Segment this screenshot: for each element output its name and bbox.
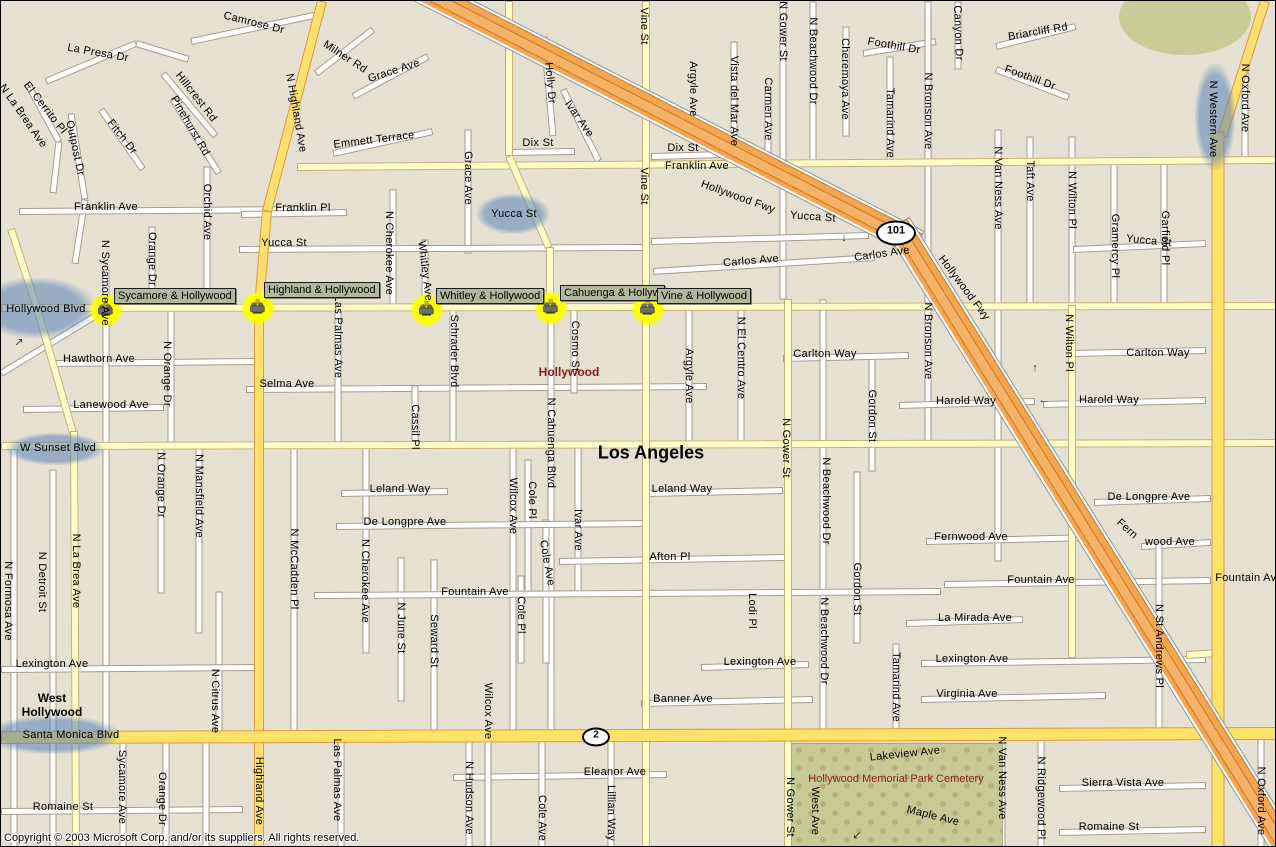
road-segment — [651, 232, 869, 245]
street-label: N Wilton Pl — [1063, 314, 1075, 372]
street-label: Sycamore Ave — [116, 750, 128, 824]
street-label: N Oxford Ave — [1255, 767, 1267, 836]
oneway-arrow-icon: ↙ — [852, 829, 861, 842]
street-label: N Detroit St — [36, 552, 48, 612]
street-label: N Ridgewood Pl — [1035, 756, 1047, 839]
route-shield-101: 101 — [876, 221, 916, 246]
oneway-arrow-icon: ↑ — [1032, 362, 1038, 374]
street-label: N Orange Dr — [155, 452, 167, 518]
street-label: N Wilton Pl — [1066, 171, 1078, 229]
street-label: Lexington Ave — [724, 656, 797, 668]
street-label: Lillian Way — [605, 785, 617, 841]
street-label: Eleanor Ave — [584, 766, 646, 778]
intersection-callout[interactable]: Whitley & Hollywood — [436, 288, 544, 304]
street-label: Hollywood Blvd — [6, 303, 85, 315]
road-segment — [1, 727, 1276, 744]
street-label: Carmen Ave — [762, 77, 774, 140]
street-label: Fountain Ave — [441, 586, 509, 598]
street-label: Tamarind Ave — [890, 652, 902, 722]
street-label: Argyle Ave — [687, 61, 699, 116]
street-label: N Western Ave — [1207, 81, 1219, 158]
street-label: Franklin Ave — [665, 160, 729, 172]
street-label: Lexington Ave — [936, 653, 1009, 665]
road-segment — [246, 383, 707, 393]
road-segment — [11, 446, 18, 847]
street-label: N El Centro Ave — [735, 317, 747, 400]
park-area — [1119, 0, 1251, 55]
camera-icon — [249, 299, 266, 314]
oneway-arrow-icon: ↓ — [841, 232, 847, 244]
street-map[interactable]: Copyright © 2003 Microsoft Corp. and/or … — [0, 0, 1276, 847]
street-label: Cole Pl — [515, 596, 527, 634]
street-label: Virginia Ave — [936, 688, 997, 700]
street-label: Carlos Ave — [853, 244, 910, 264]
copyright-text: Copyright © 2003 Microsoft Corp. and/or … — [4, 832, 359, 844]
street-label: N Beachwood Dr — [807, 17, 819, 104]
street-label: Afton Pl — [650, 551, 691, 563]
street-label: N Bronson Ave — [922, 302, 934, 379]
road-segment — [944, 577, 1211, 588]
street-label: N Gower St — [780, 418, 792, 478]
street-label: La Mirada Ave — [938, 612, 1012, 624]
camera-icon — [418, 301, 435, 316]
street-label: Grace Ave — [462, 151, 474, 205]
street-label: Cole Pl — [526, 481, 538, 519]
street-label: Banner Ave — [653, 693, 713, 705]
street-label: Las Palmas Ave — [331, 739, 343, 822]
street-label: Yucca St — [790, 209, 837, 224]
oneway-arrow-icon: ↗ — [14, 336, 23, 349]
street-label: N Beachwood Dr — [820, 457, 832, 544]
street-label: Outpost Dr — [63, 119, 86, 176]
street-label: N Sycamore Ave — [99, 240, 111, 326]
street-label: Schrader Blvd — [448, 315, 460, 388]
street-label: De Longpre Ave — [364, 516, 447, 528]
street-label: Vine St — [638, 167, 650, 204]
street-label: Taft Ave — [1024, 160, 1036, 201]
road-segment — [7, 228, 41, 309]
place-label: Hollywood — [539, 365, 600, 379]
street-label: N McCadden Pl — [288, 529, 300, 610]
road-segment — [50, 141, 63, 194]
intersection-callout[interactable]: Cahuenga & Hollyw — [560, 285, 665, 301]
street-label: Lanewood Ave — [73, 399, 149, 411]
street-label: Carlton Way — [793, 348, 856, 360]
camera-icon — [639, 300, 656, 315]
street-label: wood Ave — [1145, 536, 1195, 548]
intersection-callout[interactable]: Highland & Hollywood — [264, 282, 380, 298]
street-label: Canyon Dr — [951, 5, 965, 61]
street-label: N Formosa Ave — [2, 561, 14, 641]
street-label: Grace Ave — [367, 57, 422, 85]
street-label: N Van Ness Ave — [992, 146, 1004, 229]
street-label: Gramercy Pl — [1109, 214, 1121, 278]
street-label: Carlton Way — [1126, 347, 1189, 359]
street-label: N June St — [395, 602, 407, 653]
place-label: WestHollywood — [22, 691, 83, 719]
street-label: Harold Way — [936, 395, 996, 407]
street-label: Hawthorn Ave — [63, 353, 135, 365]
street-label: De Longpre Ave — [1108, 491, 1191, 503]
street-label: N Cahuenga Blvd — [545, 398, 557, 489]
street-label: Fitch Dr — [105, 117, 140, 157]
place-label: Los Angeles — [598, 443, 704, 464]
street-label: Harold Way — [1079, 394, 1139, 406]
road-segment — [642, 1, 650, 847]
street-label: Orchid Ave — [201, 184, 213, 241]
road-segment — [70, 431, 80, 847]
street-label: N Van Ness Ave — [996, 736, 1008, 819]
road-segment — [854, 471, 861, 643]
street-label: Orange Dr — [146, 232, 158, 286]
street-label: Ivar Ave — [572, 509, 584, 551]
street-label: Wilcox Ave — [482, 683, 494, 740]
road-segment — [485, 737, 492, 847]
street-label: Romaine St — [33, 801, 93, 813]
place-label: Hollywood Memorial Park Cemetery — [808, 773, 983, 785]
street-label: Gordon St — [866, 390, 878, 443]
street-label: N Cherokee Ave — [359, 539, 371, 623]
street-label: N Orange Dr — [161, 341, 173, 407]
street-label: West Ave — [809, 787, 821, 835]
street-label: Ivar Ave — [562, 98, 596, 139]
street-label: N St Andrews Pl — [1153, 604, 1165, 688]
street-label: Wilcox Ave — [507, 478, 519, 535]
street-label: Cassil Pl — [409, 404, 421, 450]
street-label: Dix St — [522, 137, 553, 149]
oneway-arrow-icon: ← — [1039, 394, 1050, 406]
street-label: N Oxford Ave — [1239, 64, 1251, 133]
street-label: N Gower St — [777, 1, 789, 61]
street-label: Gordon St — [851, 563, 863, 616]
street-label: Hollywood Fwy — [699, 178, 776, 216]
street-label: Garfield Pl — [1159, 211, 1171, 266]
route-shield-2: 2 — [582, 728, 610, 747]
road-segment — [314, 588, 941, 599]
street-label: Highland Ave — [253, 757, 265, 825]
street-label: Tamarind Ave — [884, 88, 896, 158]
street-label: Cheremoya Ave — [839, 38, 851, 120]
street-label: Franklin Pl — [275, 202, 330, 214]
street-label: Cosmo St — [569, 321, 581, 372]
street-label: Leland Way — [652, 483, 713, 495]
street-label: N Beachwood Dr — [818, 597, 830, 684]
street-label: Sierra Vista Ave — [1082, 777, 1165, 789]
street-label: Fountain Ave — [1007, 574, 1075, 586]
street-label: N Cherokee Ave — [383, 211, 395, 295]
street-label: N Mansfield Ave — [193, 454, 205, 538]
street-label: N Citrus Ave — [209, 669, 221, 734]
intersection-callout[interactable]: Vine & Hollywood — [657, 288, 751, 304]
street-label: N La Brea Ave — [70, 534, 82, 609]
street-label: N Hudson Ave — [463, 761, 475, 835]
street-label: N Gower St — [784, 777, 796, 837]
street-label: Fernwood Ave — [934, 531, 1008, 543]
street-label: W Sunset Blvd — [20, 442, 96, 454]
street-label: Santa Monica Blvd — [23, 729, 120, 741]
street-label: Yucca St — [491, 208, 537, 220]
street-label: Vine St — [638, 7, 650, 44]
road-segment — [203, 737, 210, 847]
street-label: Briarcliff Rd — [1007, 21, 1069, 43]
street-label: Lodi Pl — [746, 593, 758, 629]
intersection-callout[interactable]: Sycamore & Hollywood — [114, 288, 236, 304]
camera-icon — [542, 299, 559, 314]
street-label: Franklin Ave — [74, 201, 138, 213]
street-label: Argyle Ave — [683, 348, 695, 403]
street-label: Vista del Mar Ave — [728, 56, 740, 146]
street-label: Cole Ave — [536, 795, 548, 841]
street-label: Romaine St — [1079, 821, 1139, 833]
street-label: Lexington Ave — [16, 658, 89, 670]
street-label: Seward St — [428, 614, 440, 667]
street-label: Milner Rd — [321, 38, 369, 75]
street-label: Yucca St — [261, 237, 307, 249]
street-label: Dix St — [667, 142, 698, 154]
street-label: Selma Ave — [259, 378, 314, 390]
street-label: Leland Way — [370, 483, 431, 495]
road-segment — [103, 307, 110, 737]
street-label: Orange Dr — [156, 772, 168, 826]
street-label: Fern — [1114, 517, 1140, 542]
road-segment — [135, 40, 190, 63]
street-label: Fountain Ave — [1215, 572, 1276, 584]
street-label: N Bronson Ave — [922, 72, 934, 149]
